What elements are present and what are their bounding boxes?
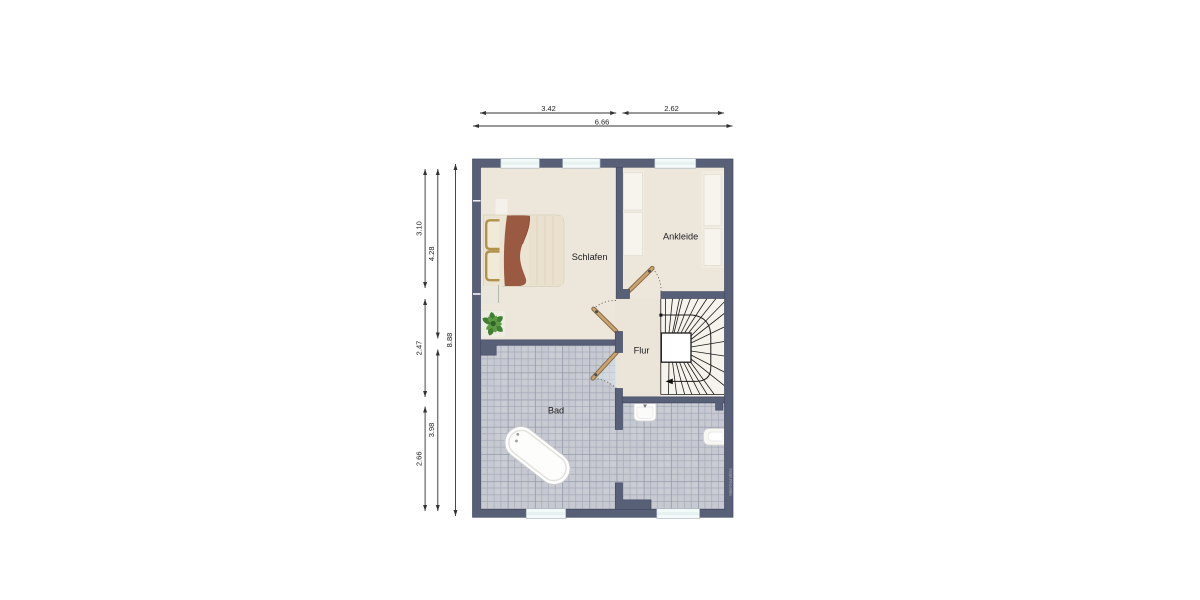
svg-text:3.42: 3.42	[541, 104, 556, 113]
svg-text:Ankleide: Ankleide	[663, 232, 698, 242]
svg-text:Schlafen: Schlafen	[572, 252, 608, 262]
svg-text:6.66: 6.66	[595, 118, 610, 127]
svg-text:MeinGrundriss: MeinGrundriss	[728, 468, 733, 495]
svg-text:2.66: 2.66	[415, 451, 424, 466]
svg-text:4.28: 4.28	[427, 246, 436, 261]
svg-text:3.10: 3.10	[415, 221, 424, 236]
svg-text:2.62: 2.62	[664, 104, 679, 113]
svg-text:8.88: 8.88	[445, 333, 454, 348]
svg-text:2.47: 2.47	[415, 341, 424, 356]
svg-text:Bad: Bad	[548, 406, 564, 416]
svg-text:3.98: 3.98	[427, 423, 436, 438]
svg-text:Flur: Flur	[634, 346, 650, 356]
